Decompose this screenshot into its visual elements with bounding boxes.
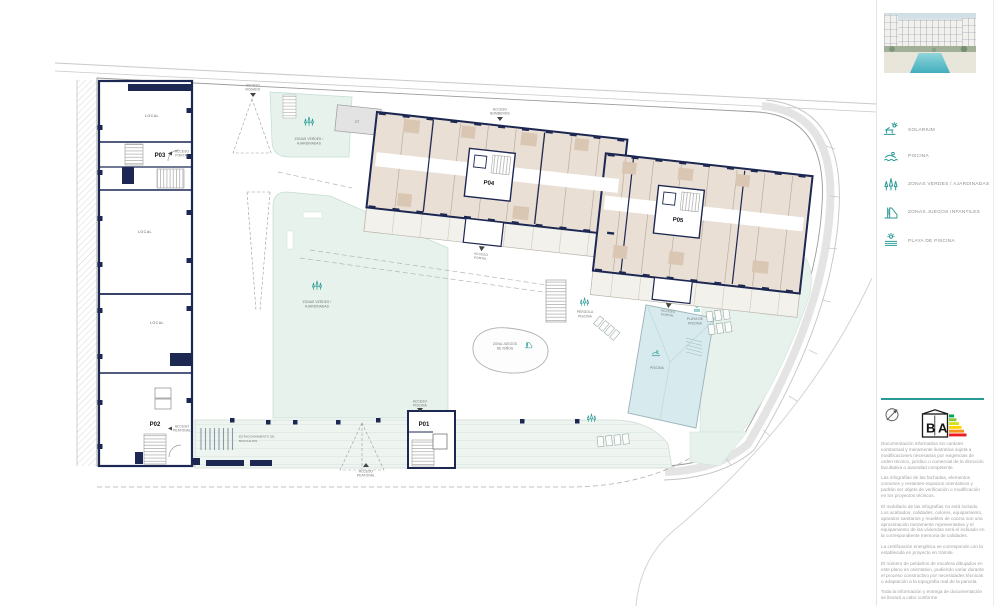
energy-bars — [949, 415, 967, 437]
legend-label: SOLARIUM — [908, 128, 935, 133]
disclaimer-paragraph: Las infografías de las fachadas, element… — [881, 475, 985, 499]
playground-label-1: ZONA JUEGOS — [493, 342, 517, 346]
energy-letter-b: B — [926, 421, 935, 436]
green-label-2: AJARDINADAS — [297, 142, 321, 146]
acceso-portal-2: PORTAL — [474, 256, 488, 261]
swimmer-icon — [883, 148, 899, 164]
playground-label-2: DE NIÑOS — [497, 346, 514, 351]
slide-icon — [883, 204, 899, 220]
pergola-label-2: PISCINA — [578, 315, 593, 319]
acceso-bomberos-2: BOMBEROS — [490, 112, 510, 116]
divider-rule — [881, 398, 984, 400]
playground-area: ZONA JUEGOS DE NIÑOS — [473, 328, 548, 373]
legend-label: ZONAS JUEGOS INFANTILES — [908, 210, 980, 215]
disclaimer-paragraph: Documentación informativa sin carácter c… — [881, 441, 985, 470]
energy-certificate-logo: B A — [921, 409, 969, 441]
north-compass-icon — [883, 405, 901, 423]
green-label-1: ZONAS VERDES / — [295, 137, 324, 141]
portal-p02-label: P02 — [150, 422, 161, 428]
pool-beach-label-2: PISCINA — [688, 322, 703, 326]
floor-plan-page: { "legend": { "items": [ {"icon": "solar… — [0, 0, 1001, 606]
legend-item-piscina: PISCINA — [883, 148, 929, 164]
legend-item-playa-piscina: PLAYA DE PISCINA — [883, 233, 955, 249]
green-label-1: ZONAS VERDES / — [303, 300, 332, 304]
photo-building-center — [896, 20, 964, 48]
acceso-rodado-2: RODADO — [246, 88, 261, 92]
portal-p05-label: P05 — [672, 217, 684, 224]
acceso-piscina-2: PISCINA — [413, 404, 428, 408]
solarium-icon — [883, 122, 899, 138]
pool-beach-icon — [883, 233, 899, 249]
local-label: LOCAL — [150, 321, 164, 325]
info-panel: SOLARIUM PISCINA ZONAS VERDES / AJARDINA… — [876, 0, 1001, 606]
pergola-label-1: PÉRGOLA — [577, 309, 594, 314]
site-plan: CT ESTACIONAMIENTO DE BICICLETAS — [0, 0, 876, 606]
disclaimer-paragraph: La certificación energética se correspon… — [881, 544, 985, 556]
acceso-portal-2: PORTAL — [175, 154, 188, 158]
page-edge-line — [993, 0, 994, 606]
pergola-label-group: PÉRGOLA PISCINA — [577, 298, 594, 319]
portal-p01-label: P01 — [419, 422, 430, 428]
pool-beach-label-1: PLAYA DE — [687, 317, 703, 321]
trees-icon — [587, 414, 595, 422]
left-street-parking-hatch — [77, 80, 97, 466]
legend-item-solarium: SOLARIUM — [883, 122, 935, 138]
project-photo — [884, 13, 976, 73]
legend-item-juegos-infantiles: ZONAS JUEGOS INFANTILES — [883, 204, 980, 220]
acceso-peatonal-2: PEATONAL — [173, 429, 191, 433]
bike-parking-label-1: ESTACIONAMIENTO DE — [239, 435, 275, 439]
energy-letter-a: A — [938, 421, 948, 436]
exterior-stair — [546, 280, 566, 322]
portal-p03-label: P03 — [155, 153, 166, 159]
acceso-peatonal-2: PEATONAL — [357, 474, 375, 478]
legend-label: PISCINA — [908, 154, 929, 159]
legal-disclaimer: Documentación informativa sin carácter c… — [881, 441, 985, 606]
pool-label: PISCINA — [650, 366, 665, 370]
ct-label: CT — [355, 120, 360, 124]
disclaimer-paragraph: El mobiliario de las infografías no está… — [881, 504, 985, 539]
trees-icon — [580, 298, 588, 306]
local-label: LOCAL — [145, 114, 159, 118]
legend-label: ZONAS VERDES / AJARDINADAS — [908, 182, 989, 187]
legend-item-zonas-verdes: ZONAS VERDES / AJARDINADAS — [883, 176, 989, 192]
trees-icon — [883, 176, 899, 192]
local-label: LOCAL — [138, 230, 152, 234]
disclaimer-paragraph: Toda la información y entrega de documen… — [881, 589, 985, 601]
building-left: LOCAL LOCAL LOCAL P03 P02 — [98, 81, 193, 466]
portal-p04-label: P04 — [483, 180, 495, 187]
bike-parking-label-2: BICICLETAS — [239, 439, 257, 443]
disclaimer-paragraph: El número de peldaños de escalera dibuja… — [881, 561, 985, 585]
green-label-2: AJARDINADAS — [305, 305, 329, 309]
legend-label: PLAYA DE PISCINA — [908, 239, 955, 244]
